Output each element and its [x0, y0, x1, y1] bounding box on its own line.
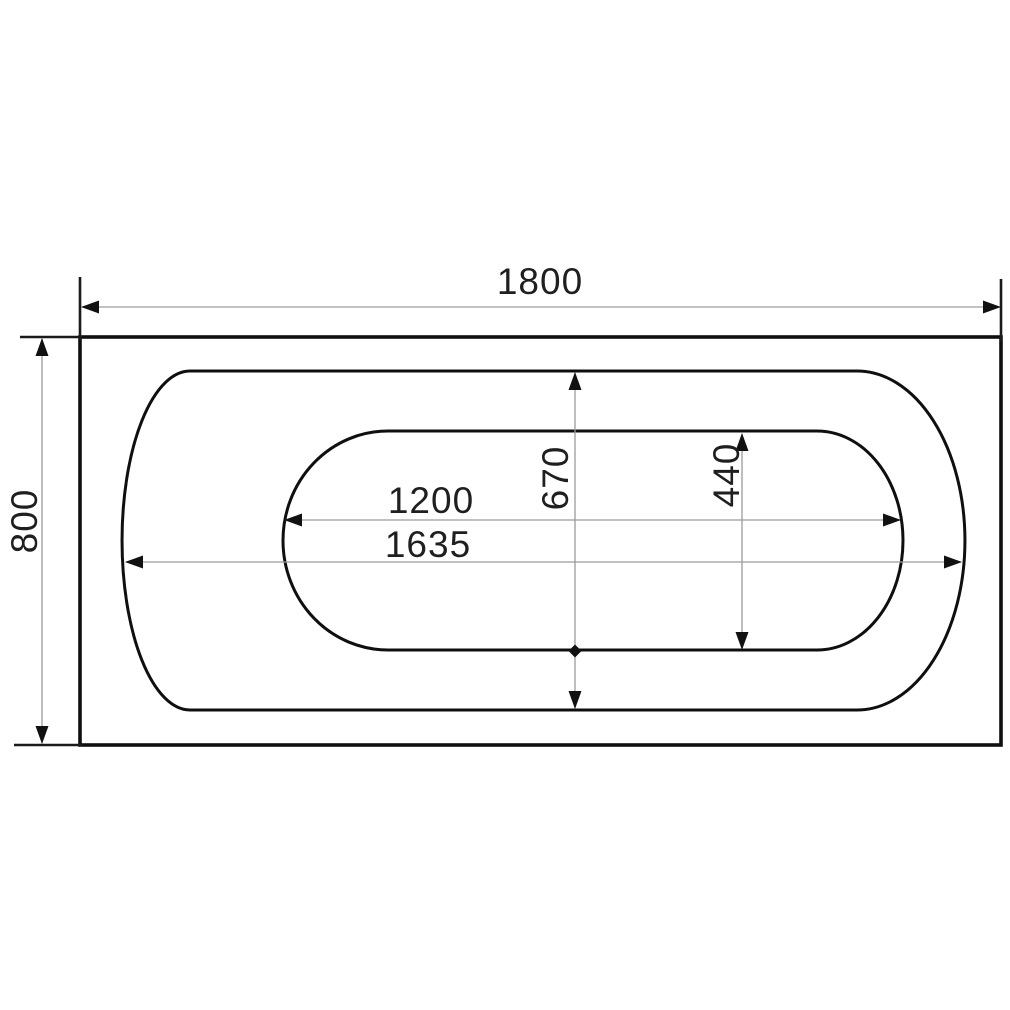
tub-basin-outline — [283, 431, 903, 650]
arrowhead-right-icon — [983, 301, 1001, 314]
drawing-canvas: 1800 800 1200 1635 670 440 — [0, 0, 1010, 1010]
arrowhead-down-icon — [36, 726, 49, 744]
dim-label-rim-width: 670 — [535, 446, 576, 511]
dim-label-overall-length: 1800 — [497, 261, 583, 302]
crossing-node-diamond-icon — [569, 645, 582, 658]
bathtub-technical-drawing: 1800 800 1200 1635 670 440 — [0, 0, 1010, 1010]
arrowhead-up-icon — [569, 372, 582, 390]
tub-outer-outline — [80, 337, 1001, 745]
tub-rim-outline — [122, 371, 965, 710]
arrowhead-down-icon — [569, 691, 582, 709]
dim-label-basin-length: 1200 — [388, 480, 474, 521]
dim-label-overall-width: 800 — [4, 489, 45, 554]
arrowhead-left-icon — [125, 556, 143, 569]
dim-label-rim-length: 1635 — [385, 524, 471, 565]
arrowhead-up-icon — [36, 338, 49, 356]
dim-label-basin-width: 440 — [706, 443, 747, 508]
arrowhead-right-icon — [944, 556, 962, 569]
arrowhead-left-icon — [81, 301, 99, 314]
arrowhead-right-icon — [883, 514, 901, 527]
arrowhead-down-icon — [736, 632, 749, 650]
